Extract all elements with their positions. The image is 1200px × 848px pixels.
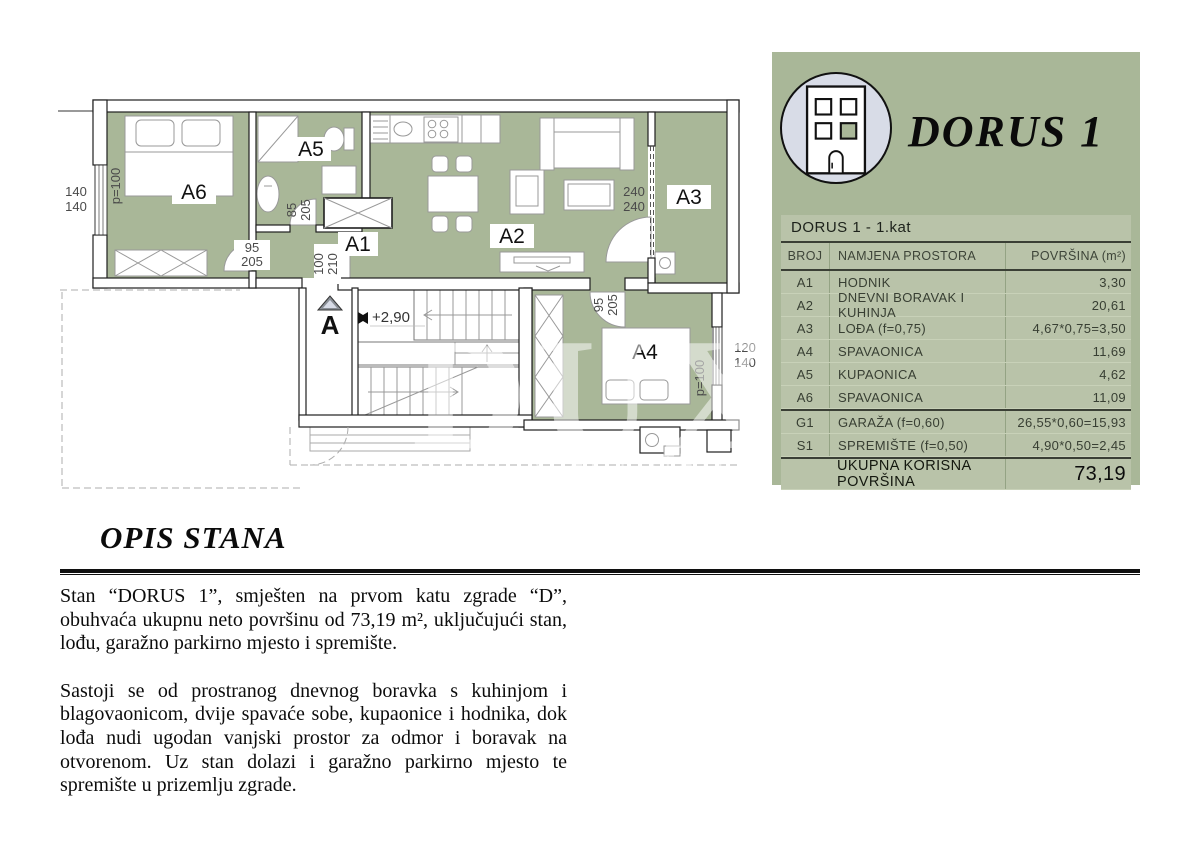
table-row: A3LOĐA (f=0,75)4,67*0,75=3,50 (781, 317, 1131, 340)
dim-parapet-left: p=100 (108, 168, 123, 205)
cell-broj: A3 (781, 321, 829, 336)
cell-namjena: LOĐA (f=0,75) (829, 317, 1005, 339)
washbasin-icon (257, 176, 279, 212)
cell-broj: G1 (781, 415, 829, 430)
room-label-a6: A6 (181, 181, 207, 204)
col-broj: BROJ (781, 249, 829, 263)
total-value: 73,19 (1005, 459, 1131, 489)
cell-namjena: KUPAONICA (829, 363, 1005, 385)
dim-window-left-1: 140 (65, 184, 87, 199)
column-icon (655, 252, 675, 274)
col-povrsina: POVRŠINA (m²) (1005, 243, 1131, 269)
dim-door-a5-1: 85 (284, 203, 299, 217)
floor-plan: A6 A5 A1 A2 A3 A4 140 140 p=100 95 205 8… (0, 0, 770, 500)
cell-broj: A4 (781, 344, 829, 359)
cell-broj: A1 (781, 275, 829, 290)
table-row: A6SPAVAONICA11,09 (781, 386, 1131, 409)
coffee-table-icon (564, 180, 614, 210)
cell-povrsina: 11,69 (1005, 340, 1131, 362)
dim-door-a3-1: 240 (623, 184, 645, 199)
dim-door-entry-2: 210 (325, 253, 340, 275)
room-label-a2: A2 (499, 225, 525, 248)
cell-broj: A5 (781, 367, 829, 382)
table-title: DORUS 1 - 1.kat (781, 215, 1131, 243)
cell-povrsina: 4,67*0,75=3,50 (1005, 317, 1131, 339)
description-paragraph-2: Sastoji se od prostranog dnevnog boravka… (60, 680, 567, 798)
room-label-a3: A3 (676, 186, 702, 209)
section-marker: A (318, 296, 342, 340)
cell-namjena: SPREMIŠTE (f=0,50) (829, 434, 1005, 456)
kitchen-counter-icon (370, 115, 500, 143)
cell-namjena: GARAŽA (f=0,60) (829, 411, 1005, 433)
sofa-icon (540, 118, 634, 170)
dim-door-entry-1: 100 (311, 253, 326, 275)
dim-door-a5-2: 205 (298, 199, 313, 221)
table-row: G1GARAŽA (f=0,60)26,55*0,60=15,93 (781, 409, 1131, 434)
cell-povrsina: 4,90*0,50=2,45 (1005, 434, 1131, 456)
area-table: DORUS 1 - 1.kat BROJ NAMJENA PROSTORA PO… (781, 215, 1131, 490)
section-letter: A (321, 310, 340, 340)
tv-stand-icon (500, 252, 584, 272)
room-label-a1: A1 (345, 233, 371, 256)
dim-door-a6-2: 205 (241, 254, 263, 269)
table-header: BROJ NAMJENA PROSTORA POVRŠINA (m²) (781, 243, 1131, 271)
table-total-row: UKUPNA KORISNA POVRŠINA 73,19 (781, 457, 1131, 490)
cell-namjena: DNEVNI BORAVAK I KUHINJA (829, 294, 1005, 316)
cell-broj: A2 (781, 298, 829, 313)
table-row: S1SPREMIŠTE (f=0,50)4,90*0,50=2,45 (781, 434, 1131, 457)
cell-namjena: SPAVAONICA (829, 386, 1005, 408)
cell-povrsina: 4,62 (1005, 363, 1131, 385)
watermark: DUX REAL ESTATE (412, 305, 770, 483)
level-value: +2,90 (372, 309, 410, 326)
description-paragraph-1: Stan “DORUS 1”, smješten na prvom katu z… (60, 585, 567, 656)
cell-povrsina: 26,55*0,60=15,93 (1005, 411, 1131, 433)
wardrobe-icon (115, 250, 207, 276)
cell-povrsina: 3,30 (1005, 271, 1131, 293)
table-row: A4SPAVAONICA11,69 (781, 340, 1131, 363)
area-table-body: A1HODNIK3,30A2DNEVNI BORAVAK I KUHINJA20… (781, 271, 1131, 457)
dim-door-a3-2: 240 (623, 199, 645, 214)
brand-title: DORUS 1 (908, 106, 1104, 157)
watermark-sub: REAL ESTATE (527, 450, 738, 475)
dim-window-left-2: 140 (65, 199, 87, 214)
armchair-icon (510, 170, 544, 214)
dim-door-a6-1: 95 (245, 240, 259, 255)
description-heading: OPIS STANA (100, 520, 287, 556)
cell-broj: A6 (781, 390, 829, 405)
cell-povrsina: 11,09 (1005, 386, 1131, 408)
table-row: A2DNEVNI BORAVAK I KUHINJA20,61 (781, 294, 1131, 317)
divider-rule (60, 569, 1140, 575)
col-namjena: NAMJENA PROSTORA (829, 243, 1005, 269)
total-label: UKUPNA KORISNA POVRŠINA (781, 458, 1005, 490)
description-block: Stan “DORUS 1”, smješten na prvom katu z… (60, 585, 567, 822)
cell-broj: S1 (781, 438, 829, 453)
info-panel: DORUS 1 DORUS 1 - 1.kat BROJ NAMJENA PRO… (772, 52, 1140, 485)
room-label-a5: A5 (298, 138, 324, 161)
cell-namjena: SPAVAONICA (829, 340, 1005, 362)
table-row: A5KUPAONICA4,62 (781, 363, 1131, 386)
vanity-icon (322, 166, 356, 194)
logo-circle (780, 72, 892, 184)
building-icon (782, 74, 890, 182)
cell-povrsina: 20,61 (1005, 294, 1131, 316)
